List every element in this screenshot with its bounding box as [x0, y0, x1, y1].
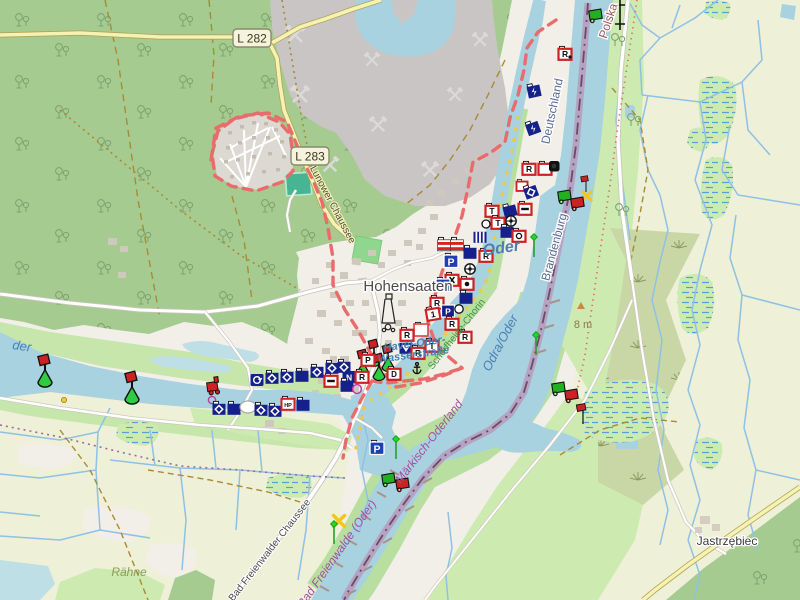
- svg-text:der: der: [12, 337, 33, 355]
- svg-text:L 283: L 283: [295, 150, 325, 164]
- svg-text:Jastrzębiec: Jastrzębiec: [697, 534, 758, 548]
- svg-text:8 m: 8 m: [574, 319, 592, 331]
- svg-text:L 282: L 282: [237, 32, 267, 46]
- svg-text:D: D: [391, 370, 397, 379]
- svg-text:P: P: [445, 306, 451, 316]
- svg-text:T: T: [489, 206, 495, 216]
- svg-text:R: R: [359, 372, 365, 382]
- svg-text:P: P: [365, 355, 371, 365]
- svg-text:T: T: [495, 218, 501, 228]
- svg-text:Hohensaaten: Hohensaaten: [363, 278, 452, 295]
- svg-text:Rähne: Rähne: [111, 565, 147, 579]
- svg-text:R: R: [526, 164, 532, 174]
- svg-text:HP: HP: [284, 403, 292, 409]
- svg-text:R: R: [562, 49, 568, 59]
